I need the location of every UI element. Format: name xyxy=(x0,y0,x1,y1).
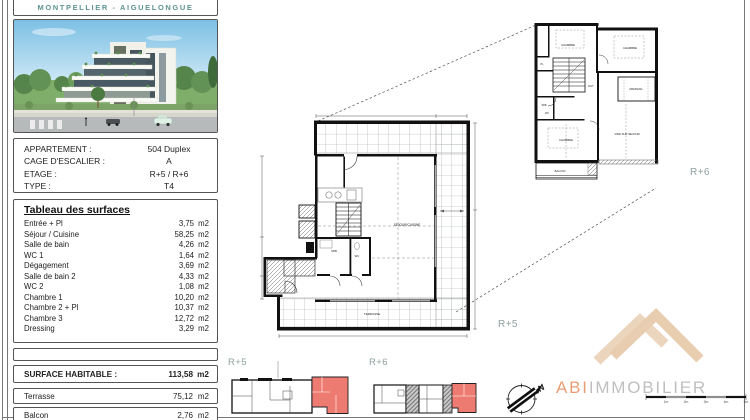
table-row: Salle de bain 24,33m2 xyxy=(24,272,209,283)
keyplan-r6 xyxy=(374,384,476,414)
toilet xyxy=(355,243,360,250)
door-swing xyxy=(599,55,608,64)
bathtub xyxy=(320,240,332,248)
door-swing xyxy=(352,276,362,286)
room-label-dressing: DRESSING xyxy=(629,88,642,91)
room-label-chambre: CHAMBRE xyxy=(561,43,575,47)
scale-label: 4m xyxy=(724,400,729,404)
room-label-dgt: DGT xyxy=(588,85,594,88)
main-floorplan: SEJOUR/CUISINE TERRASSE SDB WC xyxy=(260,114,477,338)
info-value: 504 Duplex xyxy=(129,143,209,155)
room-label-vide: VIDE SUR SEJOUR xyxy=(614,132,639,136)
projection-line-top xyxy=(318,25,536,121)
room-label-pl: PL xyxy=(540,63,544,66)
main-plan-floor-label: R+5 xyxy=(498,319,518,330)
door-swing xyxy=(330,276,340,286)
cloud xyxy=(32,28,76,36)
project-title-box: MONTPELLIER - AIGUELONGUE xyxy=(13,0,218,16)
door-swing xyxy=(344,157,357,170)
upper-staircase xyxy=(553,58,585,92)
room-label-chambre: CHAMBRE xyxy=(559,138,573,142)
agency-name: ABIIMMOBILIER xyxy=(556,378,707,397)
frame-left-inner xyxy=(7,0,8,420)
room-label-wc: WC xyxy=(355,254,360,258)
surface-table-title: Tableau des surfaces xyxy=(24,204,209,216)
table-row: Chambre 312,72m2 xyxy=(24,314,209,325)
info-value: T4 xyxy=(129,180,209,192)
table-row: Chambre 110,20m2 xyxy=(24,293,209,304)
apartment-info-box: APPARTEMENT : 504 Duplex CAGE D'ESCALIER… xyxy=(13,138,218,193)
info-value: A xyxy=(129,155,209,167)
table-row: Entrée + Pl3,75m2 xyxy=(24,219,209,230)
room-label-balcon: BALCON xyxy=(555,169,566,173)
room-label-terrasse: TERRASSE xyxy=(364,312,380,316)
scale-label: 2m xyxy=(684,400,689,404)
info-row: ETAGE : R+5 / R+6 xyxy=(24,168,209,180)
info-row: TYPE : T4 xyxy=(24,180,209,192)
room-label-sdb: SDB xyxy=(542,104,547,107)
table-row: WC 21,08m2 xyxy=(24,282,209,293)
balcon-box: Balcon 2,76 m2 xyxy=(13,407,218,420)
table-row: Séjour / Cuisine58,25m2 xyxy=(24,230,209,241)
staircase xyxy=(336,203,361,236)
keyplan-r6-label: R+6 xyxy=(369,357,388,368)
info-label: APPARTEMENT : xyxy=(24,143,92,155)
door-swing xyxy=(548,98,556,106)
scale-label: 5m xyxy=(744,400,749,404)
info-row: CAGE D'ESCALIER : A xyxy=(24,155,209,167)
car-dark xyxy=(106,119,120,124)
info-label: ETAGE : xyxy=(24,168,57,180)
table-row: Salle de bain4,26m2 xyxy=(24,240,209,251)
info-row: APPARTEMENT : 504 Duplex xyxy=(24,143,209,155)
frame-left-outer xyxy=(2,0,3,420)
plan-area: SEJOUR/CUISINE TERRASSE SDB WC R+5 xyxy=(222,0,750,420)
info-value: R+5 / R+6 xyxy=(129,168,209,180)
room-label-chambre: CHAMBRE xyxy=(623,46,637,50)
cloud xyxy=(146,35,182,41)
info-label: TYPE : xyxy=(24,180,51,192)
room-label-sdb: SDB xyxy=(331,249,337,253)
surface-habitable-box: SURFACE HABITABLE : 113,58 m2 xyxy=(13,365,218,383)
table-row: WC 11,64m2 xyxy=(24,251,209,262)
keyplan-r5-highlight xyxy=(312,377,348,414)
duct-shaft xyxy=(299,221,315,238)
table-row: Dégagement3,69m2 xyxy=(24,261,209,272)
info-label: CAGE D'ESCALIER : xyxy=(24,155,105,167)
keyplan-r5 xyxy=(232,361,348,414)
agency-logo: ABIIMMOBILIER xyxy=(556,315,707,397)
duct-shaft xyxy=(299,205,315,218)
floorplan-sheet: MONTPELLIER - AIGUELONGUE xyxy=(0,0,750,420)
scale-label: 3m xyxy=(704,400,709,404)
building-render xyxy=(14,20,217,132)
upper-plan-floor-label: R+6 xyxy=(690,167,710,178)
table-row: Chambre 2 + Pl10,37m2 xyxy=(24,303,209,314)
room-label-sejour: SEJOUR/CUISINE xyxy=(394,223,421,227)
table-row: Dressing3,29m2 xyxy=(24,324,209,335)
scale-label: 1m xyxy=(664,400,669,404)
spacer-box xyxy=(13,348,218,361)
projection-line-bottom xyxy=(456,188,656,312)
building-photo-box xyxy=(13,19,218,133)
room-label-wc: WC xyxy=(545,112,549,115)
kitchen-fixtures xyxy=(318,188,362,202)
upper-floorplan: CHAMBRE CHAMBRE PL DGT DRESSING SDB WC C… xyxy=(535,23,659,179)
project-location: MONTPELLIER - AIGUELONGUE xyxy=(38,3,194,12)
terrasse-box: Terrasse 75,12 m2 xyxy=(13,388,218,404)
surface-table-box: Tableau des surfaces Entrée + Pl3,75m2 S… xyxy=(13,199,218,343)
keyplan-r5-label: R+5 xyxy=(228,357,247,368)
upper-balcony xyxy=(536,163,597,179)
compass-icon: N xyxy=(506,381,547,414)
